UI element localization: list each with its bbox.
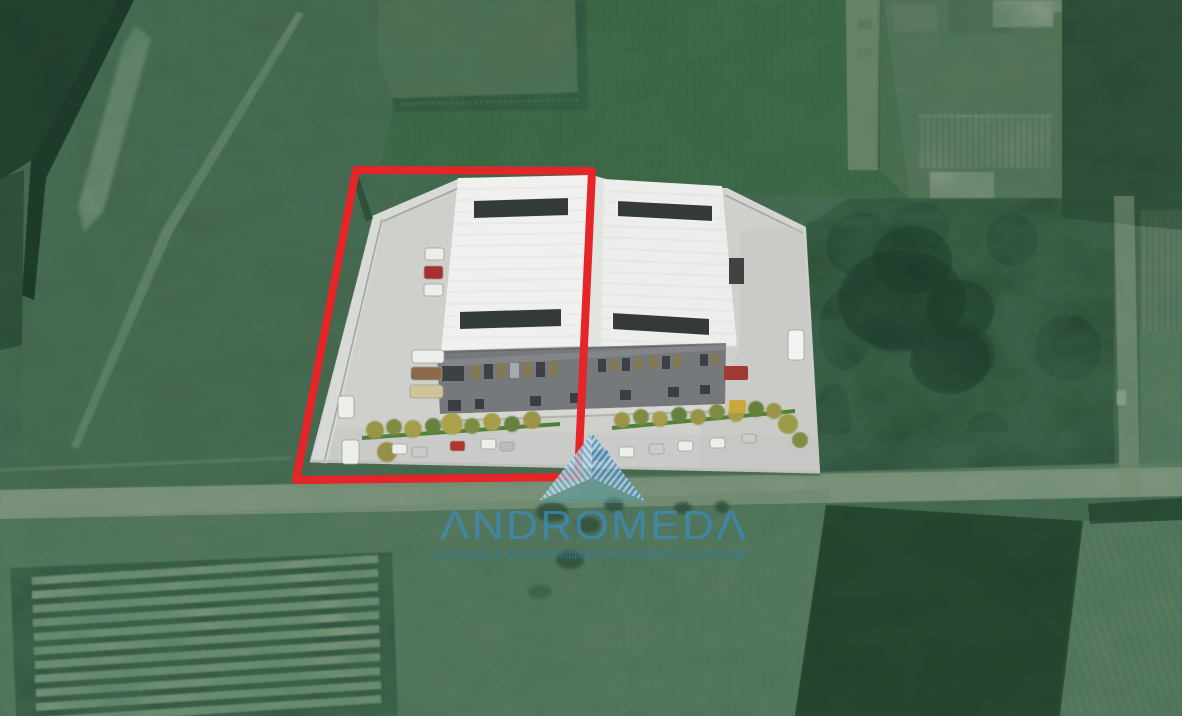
svg-text:Consulenze & Servizi Immobilia: Consulenze & Servizi Immobiliari Civili,… [434, 547, 747, 562]
svg-text:ΛNDROMEDΛ: ΛNDROMEDΛ [440, 502, 748, 548]
